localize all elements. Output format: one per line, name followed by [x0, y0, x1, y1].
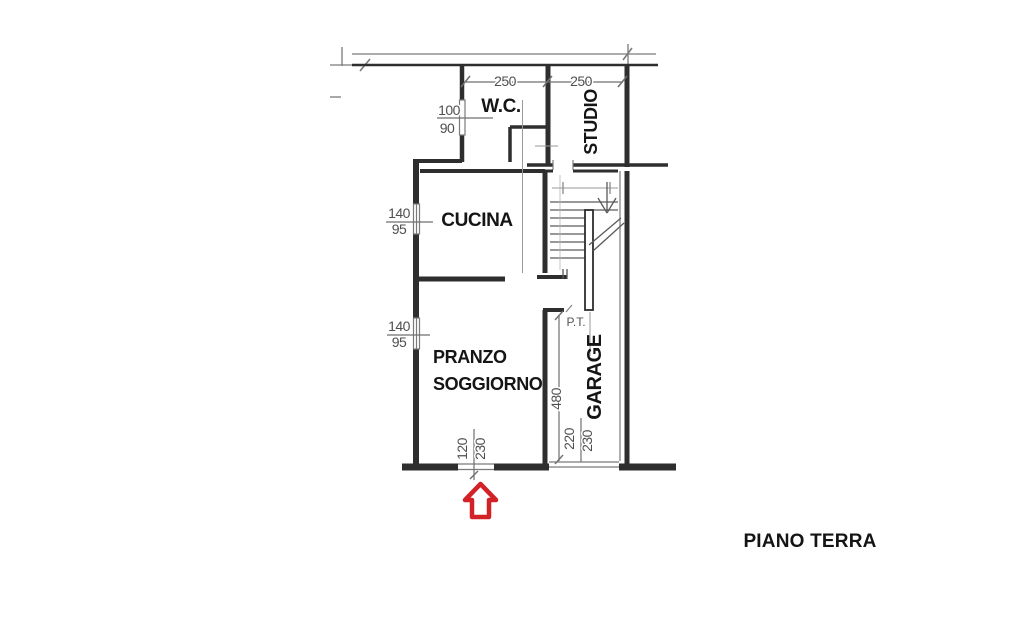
stair-newel-wall — [585, 210, 593, 310]
stairs-level-label: P.T. — [566, 315, 585, 329]
dim-cucina-window-h: 95 — [392, 221, 407, 237]
entrance-arrow-icon — [465, 484, 496, 517]
boundary-lines — [330, 44, 656, 97]
dim-entrance-door-h: 230 — [472, 437, 488, 460]
floor-plan-drawing: 250 250 100 90 140 95 140 95 120 230 480… — [0, 0, 1024, 627]
floor-plan-page: 250 250 100 90 140 95 140 95 120 230 480… — [0, 0, 1024, 627]
dim-cucina-window-w: 140 — [388, 205, 411, 221]
dim-pranzo-window-w: 140 — [388, 318, 411, 334]
dim-pranzo-window-h: 95 — [392, 334, 407, 350]
room-label-wc: W.C. — [481, 96, 521, 117]
room-label-garage: GARAGE — [584, 334, 606, 419]
floor-title: PIANO TERRA — [743, 531, 876, 552]
walls — [352, 65, 676, 467]
dim-wc-window-h: 90 — [440, 120, 455, 136]
dim-garage-depth: 480 — [548, 387, 564, 410]
room-label-pranzo-line1: PRANZO — [433, 347, 507, 367]
dim-garage-door-w: 220 — [561, 427, 577, 450]
dim-studio-width: 250 — [570, 73, 593, 89]
room-label-studio: STUDIO — [581, 89, 601, 155]
stairs — [550, 175, 624, 312]
room-label-pranzo-line2: SOGGIORNO — [433, 374, 543, 394]
dim-garage-door-h: 230 — [579, 429, 595, 452]
stair-direction-arrow-icon — [598, 182, 616, 213]
dim-wc-width: 250 — [494, 73, 517, 89]
room-label-cucina: CUCINA — [441, 210, 513, 231]
dim-entrance-door-w: 120 — [454, 437, 470, 460]
dim-wc-window-w: 100 — [438, 102, 461, 118]
